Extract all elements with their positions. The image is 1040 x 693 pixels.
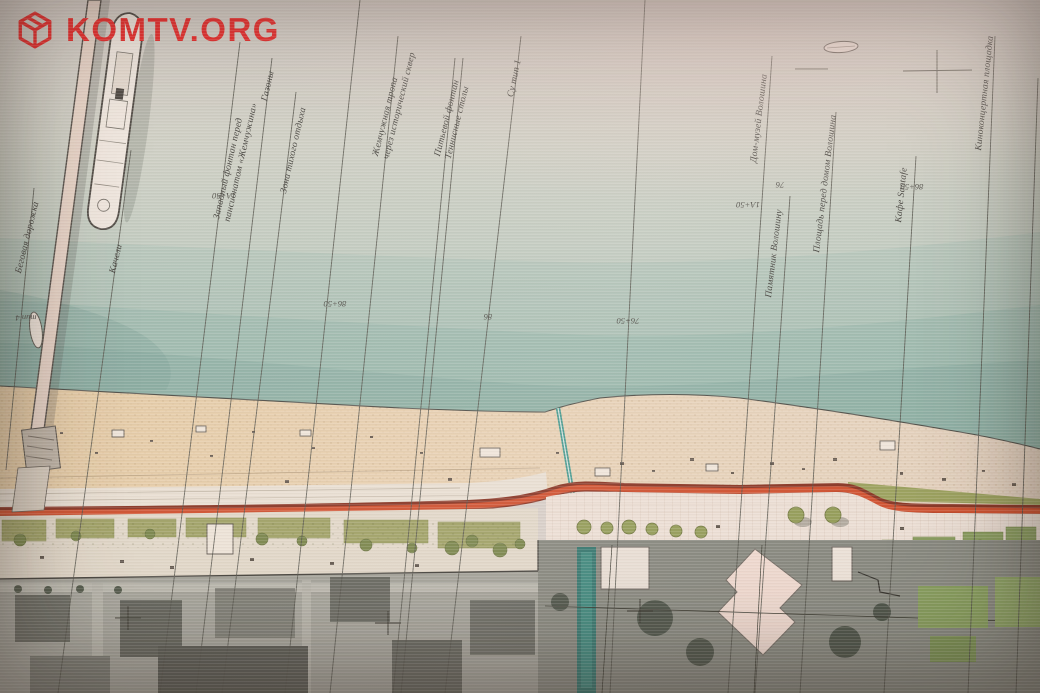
station-mark-1a50-r: 1А+50 <box>736 200 760 210</box>
pier-ramp <box>12 466 50 512</box>
promenade-building <box>207 524 233 554</box>
watermark-logo: KOMTV.ORG <box>15 10 280 50</box>
station-mark-86: 86 <box>484 312 493 322</box>
station-mark-tip4: тип 4 <box>15 313 36 323</box>
lower-promenade <box>0 508 538 581</box>
station-mark-8650-l: 86+50 <box>324 299 347 309</box>
plan-photo: Беговая дорожка Качели Западный фонтан п… <box>0 0 1040 693</box>
cube-logo-icon <box>15 10 55 50</box>
white-building-1 <box>601 547 649 589</box>
watermark-text: KOMTV.ORG <box>66 11 280 49</box>
station-mark-8650-r: 86+50 <box>901 182 924 192</box>
station-mark-7650: 76+50 <box>617 316 640 326</box>
white-building-2 <box>832 547 852 581</box>
pier-root <box>22 426 61 472</box>
station-mark-1a50-l: 1А+50 <box>212 191 236 201</box>
embankment-plan-drawing <box>0 0 1040 693</box>
station-mark-76: 76 <box>776 180 785 190</box>
